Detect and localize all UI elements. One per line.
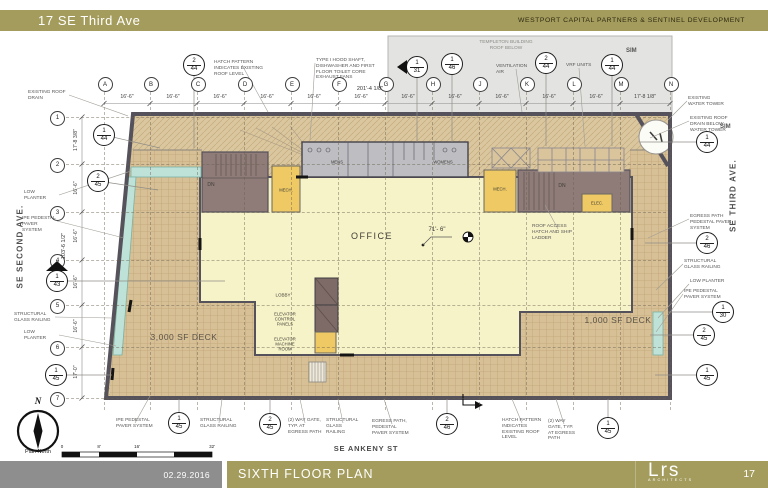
callout-note: VRF UNITS bbox=[566, 63, 592, 69]
scale-tick-32: 32' bbox=[209, 444, 215, 449]
dimension-label: 16'-6" bbox=[354, 94, 367, 100]
sheet-date: 02.29.2016 bbox=[163, 470, 210, 480]
sheet-number: 46 bbox=[700, 244, 714, 251]
detail-marker: 144 bbox=[696, 131, 718, 153]
detail-marker: 145 bbox=[168, 412, 190, 434]
detail-number: 1 bbox=[97, 128, 111, 136]
dimension-label: 17'-0" bbox=[73, 365, 79, 378]
detail-number: 1 bbox=[605, 58, 619, 66]
detail-marker: 144 bbox=[93, 124, 115, 146]
grid-column-bubble: H bbox=[426, 77, 441, 92]
grid-column-bubble: J bbox=[473, 77, 488, 92]
sheet-number: 44 bbox=[700, 143, 714, 150]
office-width-dim: 71'- 6" bbox=[417, 227, 457, 233]
footer-bar: SIXTH FLOOR PLAN Lrs ARCHITECTS 17 bbox=[227, 461, 768, 488]
dimension-label: 16'-6" bbox=[401, 94, 414, 100]
callout-note: VENTILATION AIR bbox=[496, 64, 536, 76]
callout-note: SIM bbox=[720, 124, 740, 131]
detail-number: 2 bbox=[91, 174, 105, 182]
grid-column-bubble: D bbox=[238, 77, 253, 92]
callout-note: SIM bbox=[626, 48, 646, 55]
room-label: MECH. bbox=[493, 187, 507, 192]
sheet-number: 45 bbox=[172, 424, 186, 431]
detail-number: 1 bbox=[49, 368, 63, 376]
section-arrow-icon bbox=[397, 60, 407, 74]
client-name: WESTPORT CAPITAL PARTNERS & SENTINEL DEV… bbox=[518, 17, 745, 24]
detail-marker: 244 bbox=[535, 52, 557, 74]
room-label: MECH. bbox=[279, 188, 293, 193]
detail-number: 1 bbox=[700, 135, 714, 143]
sheet-number: 46 bbox=[440, 425, 454, 432]
detail-marker: 246 bbox=[696, 232, 718, 254]
callout-note: IPE PEDESTAL PAVER SYSTEM bbox=[116, 418, 154, 430]
detail-number: 2 bbox=[263, 417, 277, 425]
callout-note: LOW PLANTER bbox=[24, 330, 58, 342]
sheet-number: 44 bbox=[539, 64, 553, 71]
detail-number: 1 bbox=[410, 60, 424, 68]
scale-tick-8: 8' bbox=[97, 444, 100, 449]
sheet-number: 45 bbox=[697, 336, 711, 343]
compass-north-letter: N bbox=[29, 396, 47, 406]
dimension-label: 16'-6" bbox=[73, 181, 79, 194]
dimension-label: 16'-6" bbox=[307, 94, 320, 100]
dimension-label: 16'-6" bbox=[166, 94, 179, 100]
sheet-number: 45 bbox=[91, 182, 105, 189]
room-label: MENS bbox=[331, 160, 343, 165]
callout-note: STRUCTURAL GLASS RAILING bbox=[326, 418, 360, 435]
drawing-sheet: ABCDEFGHJKLMN123456716'-6"16'-6"16'-6"16… bbox=[0, 0, 768, 497]
detail-marker: 145 bbox=[597, 417, 619, 439]
detail-number: 2 bbox=[697, 328, 711, 336]
title-bar: 17 SE Third Ave WESTPORT CAPITAL PARTNER… bbox=[0, 10, 768, 31]
grid-column-bubble: M bbox=[614, 77, 629, 92]
dimension-label: 16'-6" bbox=[495, 94, 508, 100]
grid-column-bubble: B bbox=[144, 77, 159, 92]
dimension-label: 16'-6" bbox=[542, 94, 555, 100]
dimension-label: 16'-6" bbox=[260, 94, 273, 100]
callout-note: LOW PLANTER bbox=[690, 279, 734, 285]
room-label: LOBBY bbox=[275, 293, 290, 298]
callout-note: STRUCTURAL GLASS RAILING bbox=[684, 259, 732, 271]
callout-note: TYPE I HOOD SHAFT, DISHWASHER AND FIRST … bbox=[316, 58, 382, 81]
date-bar: 02.29.2016 bbox=[0, 461, 222, 488]
scale-tick-16: 16' bbox=[134, 444, 140, 449]
detail-number: 1 bbox=[601, 421, 615, 429]
sheet-number: 44 bbox=[187, 66, 201, 73]
room-label: DN bbox=[207, 182, 214, 188]
street-label-west: SE SECOND AVE. bbox=[16, 202, 25, 292]
deck-label: 3,000 SF DECK bbox=[151, 332, 218, 342]
project-title: 17 SE Third Ave bbox=[38, 13, 140, 28]
callout-note: (2) WAY GATE, TYP. AT EGRESS PATH bbox=[548, 419, 580, 442]
grid-row-bubble: 2 bbox=[50, 158, 65, 173]
dimension-label: 16'-6" bbox=[213, 94, 226, 100]
detail-number: 1 bbox=[172, 416, 186, 424]
street-label-east: SE THIRD AVE. bbox=[729, 151, 738, 241]
sheet-number: 45 bbox=[49, 376, 63, 383]
detail-marker: 145 bbox=[45, 364, 67, 386]
dimension-label: 16'-6" bbox=[73, 229, 79, 242]
sheet-number: 30 bbox=[716, 313, 730, 320]
firm-logo: Lrs ARCHITECTS bbox=[648, 462, 693, 482]
grid-column-bubble: L bbox=[567, 77, 582, 92]
dimension-label: 16'-6" bbox=[448, 94, 461, 100]
grid-column-bubble: E bbox=[285, 77, 300, 92]
street-label-south: SE ANKENY ST bbox=[316, 444, 416, 453]
callout-note: HATCH PATTERN INDICATES EXISTING ROOF LE… bbox=[502, 418, 542, 441]
dimension-label: 16'-6" bbox=[589, 94, 602, 100]
room-label: DN bbox=[558, 183, 565, 189]
grid-column-bubble: A bbox=[98, 77, 113, 92]
callout-note: EGRESS PATH, PEDESTAL PAVER SYSTEM bbox=[372, 419, 412, 436]
deck-label: 1,000 SF DECK bbox=[585, 315, 652, 325]
room-label: WOMENS bbox=[433, 160, 452, 165]
sheet-title: SIXTH FLOOR PLAN bbox=[238, 467, 373, 481]
dimension-label: 16'-6" bbox=[120, 94, 133, 100]
grid-column-bubble: K bbox=[520, 77, 535, 92]
callout-note: EXISTING ROOF DRAIN bbox=[28, 90, 68, 102]
callout-note: STRUCTURAL GLASS RAILING bbox=[14, 312, 54, 324]
dimension-label: 17'-8 3/8" bbox=[73, 129, 79, 151]
grid-row-bubble: 1 bbox=[50, 111, 65, 126]
callout-note: EXISTING WATER TOWER bbox=[688, 96, 728, 108]
scale-tick-0: 0 bbox=[61, 444, 64, 449]
overall-height-dim: 103'-6 1/2" bbox=[61, 211, 67, 281]
logo-text: Lrs bbox=[648, 462, 693, 479]
dimension-label: 16'-6" bbox=[73, 319, 79, 332]
overall-width-dim: 201'-4 1/8" bbox=[335, 86, 405, 92]
sheet-number: 44 bbox=[605, 66, 619, 73]
sheet-number: 45 bbox=[263, 425, 277, 432]
footer-divider bbox=[635, 461, 636, 488]
callout-note: HATCH PATTERN INDICATES EXISTING ROOF LE… bbox=[214, 60, 270, 77]
detail-marker: 145 bbox=[696, 364, 718, 386]
room-label: OFFICE bbox=[351, 231, 393, 241]
detail-marker: 245 bbox=[693, 324, 715, 346]
logo-subtext: ARCHITECTS bbox=[648, 478, 693, 482]
detail-marker: 131 bbox=[406, 56, 428, 78]
sheet-number: 46 bbox=[445, 65, 459, 72]
page-number: 17 bbox=[743, 468, 755, 480]
sheet-number: 43 bbox=[50, 282, 64, 289]
detail-number: 2 bbox=[539, 56, 553, 64]
annotation-layer: ABCDEFGHJKLMN123456716'-6"16'-6"16'-6"16… bbox=[0, 0, 768, 497]
detail-number: 2 bbox=[440, 417, 454, 425]
sheet-number: 44 bbox=[97, 136, 111, 143]
detail-number: 2 bbox=[187, 58, 201, 66]
detail-number: 2 bbox=[700, 236, 714, 244]
grid-column-bubble: C bbox=[191, 77, 206, 92]
grid-row-bubble: 7 bbox=[50, 392, 65, 407]
compass-caption: Plan North bbox=[8, 449, 68, 455]
sheet-number: 45 bbox=[601, 429, 615, 436]
sheet-number: 31 bbox=[410, 68, 424, 75]
detail-number: 1 bbox=[445, 57, 459, 65]
callout-note: TEMPLETON BUILDING ROOF BELOW bbox=[478, 40, 534, 52]
room-label: ELEC. bbox=[591, 201, 603, 206]
detail-marker: 245 bbox=[259, 413, 281, 435]
callout-note: IPE PEDESTAL PAVER SYSTEM bbox=[22, 216, 56, 233]
callout-note: IPE PEDESTAL PAVER SYSTEM bbox=[684, 289, 732, 301]
dimension-label: 16'-6" bbox=[73, 275, 79, 288]
detail-marker: 244 bbox=[183, 54, 205, 76]
detail-marker: 130 bbox=[712, 301, 734, 323]
room-label: ELEVATOR CONTROL PANELS bbox=[271, 312, 299, 327]
detail-marker: 146 bbox=[441, 53, 463, 75]
callout-note: STRUCTURAL GLASS RAILING bbox=[200, 418, 238, 430]
callout-note: LOW PLANTER bbox=[24, 190, 58, 202]
detail-marker: 245 bbox=[87, 170, 109, 192]
detail-marker: 144 bbox=[601, 54, 623, 76]
detail-marker: 246 bbox=[436, 413, 458, 435]
callout-note: ROOF ACCESS HATCH AND SHIP LADDER bbox=[532, 224, 584, 241]
sheet-number: 45 bbox=[700, 376, 714, 383]
grid-row-bubble: 6 bbox=[50, 341, 65, 356]
detail-number: 1 bbox=[700, 368, 714, 376]
callout-note: (2) WAY GATE, TYP. AT EGRESS PATH bbox=[288, 418, 322, 435]
detail-number: 1 bbox=[716, 305, 730, 313]
grid-column-bubble: N bbox=[664, 77, 679, 92]
dimension-label: 17'-8 1/8" bbox=[634, 94, 656, 100]
room-label: ELEVATOR MACHINE ROOM bbox=[271, 337, 299, 352]
